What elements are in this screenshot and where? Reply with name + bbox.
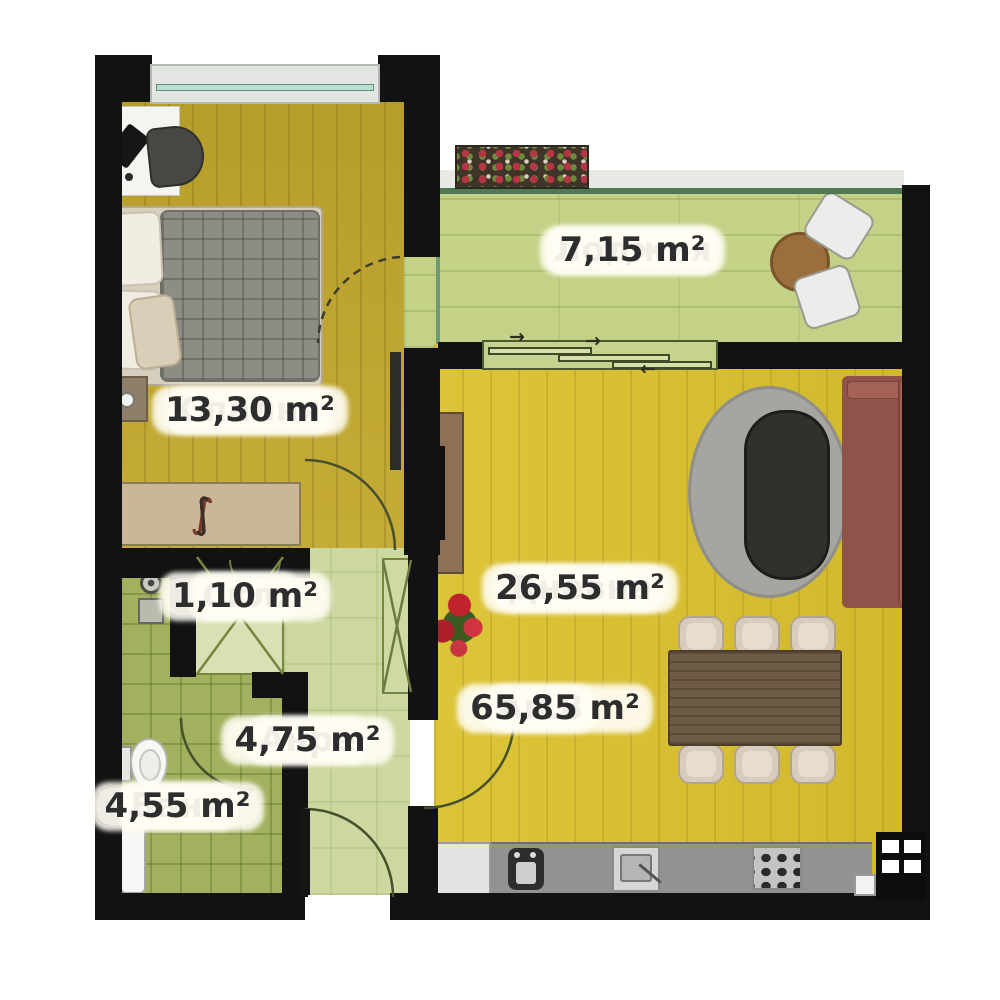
coffee-machine-icon bbox=[508, 848, 544, 890]
sliding-panel bbox=[612, 361, 712, 369]
coffee-table bbox=[744, 410, 830, 580]
shaft-cell bbox=[882, 840, 899, 853]
pillow bbox=[127, 293, 183, 371]
room-area: 4,55 m² bbox=[97, 788, 257, 825]
floor-plan: → → ← ∫ ∫ ∫ ∫ ∫ ∫ ∫ ∫ bbox=[0, 0, 1000, 1000]
appliance-door bbox=[516, 862, 536, 884]
arrow-right-icon: → bbox=[585, 332, 601, 351]
loggia-threshold bbox=[404, 257, 440, 348]
sink-basin bbox=[620, 854, 652, 882]
kitchen-sink-icon bbox=[612, 846, 660, 892]
apartment-area: 65,85 m² bbox=[463, 690, 647, 727]
room-area: 13,30 m² bbox=[158, 392, 342, 429]
room-area: 7,15 m² bbox=[552, 232, 712, 269]
service-shaft bbox=[876, 832, 926, 900]
service-box bbox=[854, 874, 876, 896]
wall-hall-living-lower bbox=[408, 806, 438, 897]
shaft-cell bbox=[904, 840, 921, 853]
living-floor bbox=[434, 344, 904, 895]
wall-bottom-left bbox=[95, 893, 305, 920]
balcony-door-leaf bbox=[390, 352, 401, 470]
knob-icon bbox=[514, 852, 520, 858]
dining-chair bbox=[734, 744, 780, 784]
toilet-seat bbox=[139, 749, 161, 781]
arrow-right-icon: → bbox=[509, 328, 525, 347]
stove-hob-icon bbox=[752, 846, 802, 890]
room-area: 26,55 m² bbox=[488, 570, 672, 607]
dining-chair bbox=[678, 744, 724, 784]
wall-bottom-right bbox=[390, 893, 930, 920]
flower-box bbox=[455, 145, 589, 189]
dining-table bbox=[668, 650, 842, 746]
shaft-cell bbox=[904, 860, 921, 873]
wardrobe: ∫ ∫ ∫ ∫ ∫ ∫ ∫ ∫ bbox=[103, 482, 301, 546]
wall-hall-living-upper bbox=[408, 555, 438, 720]
wall-loggia-divider-right bbox=[716, 342, 904, 369]
wall-bedroom-bottom bbox=[95, 548, 310, 578]
bed-duvet bbox=[160, 210, 320, 382]
knob-icon bbox=[530, 852, 536, 858]
desk-item-icon bbox=[125, 173, 133, 181]
shower-fixture bbox=[138, 598, 164, 624]
wall-right bbox=[902, 185, 930, 920]
wall-top-left bbox=[95, 55, 152, 102]
wall-bedroom-right-upper bbox=[404, 55, 440, 257]
wall-bath-storage bbox=[170, 555, 196, 677]
room-area: 1,10 m² bbox=[165, 578, 325, 615]
bedroom-window-glass bbox=[156, 84, 374, 91]
wall-bedroom-right-mid bbox=[404, 348, 440, 555]
wall-loggia-divider-left bbox=[438, 342, 482, 369]
dining-chair bbox=[790, 744, 836, 784]
shaft-cell bbox=[882, 860, 899, 873]
arrow-left-icon: ← bbox=[640, 360, 656, 379]
room-area: 4,75 m² bbox=[227, 722, 387, 759]
